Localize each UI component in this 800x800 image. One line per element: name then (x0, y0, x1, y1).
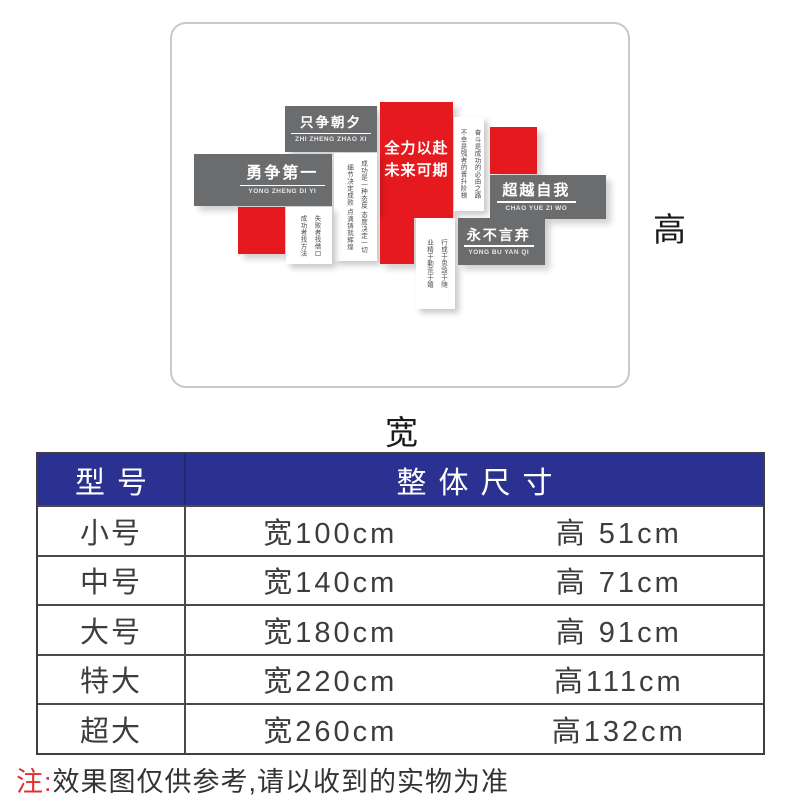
height-value: 高 51cm (475, 510, 764, 552)
width-value: 宽140cm (186, 559, 475, 601)
slogan-inner: 只争朝夕 ZHI ZHENG ZHAO XI (291, 106, 370, 152)
slogan-title: 勇争第一 (240, 165, 326, 183)
dimensions-cell: 宽100cm 高 51cm (186, 507, 763, 555)
slogan-pinyin: CHAO YUE ZI WO (497, 205, 576, 212)
slogan-title: 只争朝夕 (291, 115, 370, 131)
product-page: 只争朝夕 ZHI ZHENG ZHAO XI 全力以赴 未来可期 奋斗是成功的必… (0, 0, 800, 800)
slogan-inner: 永不言弃 YONG BU YAN QI (464, 218, 534, 265)
header-dimensions: 整体尺寸 (186, 454, 763, 505)
note-text: 效果图仅供参考,请以收到的实物为准 (53, 767, 510, 797)
dimensions-cell: 宽140cm 高 71cm (186, 557, 763, 605)
red-square-bottom-middle (380, 217, 414, 264)
size-table: 型号 整体尺寸 小号 宽100cm 高 51cm 中号 宽140cm 高 71c… (36, 452, 765, 755)
model-cell: 小号 (38, 507, 186, 555)
vertical-text-col: 成功者找方法 (297, 215, 307, 257)
vertical-text-strip-xingcheng: 行成于思毁于随 业精于勤荒于嬉 (416, 218, 455, 309)
slogan-line1: 全力以赴 (384, 138, 448, 161)
note-prefix: 注: (16, 767, 53, 797)
vertical-text-col: 失败者找借口 (311, 215, 321, 257)
underline-rule (240, 185, 326, 187)
slogan-block-chao-yue-zi-wo: 超越自我 CHAO YUE ZI WO (490, 175, 606, 219)
underline-rule (464, 245, 534, 247)
table-row: 特大 宽220cm 高111cm (38, 654, 763, 704)
slogan-title: 永不言弃 (464, 227, 534, 243)
width-value: 宽260cm (186, 708, 475, 750)
width-value: 宽100cm (186, 510, 475, 552)
table-row: 中号 宽140cm 高 71cm (38, 555, 763, 605)
height-dimension-label: 高 (653, 203, 686, 251)
vertical-text-col: 成功是一种态度 态度决定一切 (358, 160, 368, 253)
slogan-line2: 未来可期 (384, 160, 448, 183)
vertical-text-strip-shibai: 失败者找借口 成功者找方法 (286, 207, 332, 264)
height-value: 高132cm (475, 708, 764, 750)
vertical-text-col: 奋斗是成功的必由之路 (471, 129, 481, 199)
vertical-text-strip-fendou: 奋斗是成功的必由之路 不幸是强者的晋升阶梯 (454, 117, 484, 211)
model-cell: 超大 (38, 705, 186, 753)
vertical-text-strip-chenggong: 成功是一种态度 态度决定一切 细节决定成败 点滴铸就辉煌 (334, 153, 377, 261)
table-row: 小号 宽100cm 高 51cm (38, 505, 763, 555)
model-cell: 大号 (38, 606, 186, 654)
red-square-left (238, 207, 285, 254)
slogan-block-quan-li-yi-fu: 全力以赴 未来可期 (380, 102, 453, 218)
slogan-title: 超越自我 (497, 182, 576, 199)
header-model: 型号 (38, 454, 186, 505)
slogan-pinyin: ZHI ZHENG ZHAO XI (291, 136, 370, 143)
width-value: 宽180cm (186, 609, 475, 651)
slogan-block-yong-zheng-di-yi: 勇争第一 YONG ZHENG DI YI (194, 154, 332, 206)
red-square-top-right (490, 127, 537, 174)
dimensions-cell: 宽180cm 高 91cm (186, 606, 763, 654)
width-value: 宽220cm (186, 658, 475, 700)
height-value: 高 71cm (475, 559, 764, 601)
table-row: 超大 宽260cm 高132cm (38, 703, 763, 753)
slogan-pinyin: YONG ZHENG DI YI (240, 188, 326, 195)
underline-rule (497, 201, 576, 203)
table-row: 大号 宽180cm 高 91cm (38, 604, 763, 654)
disclaimer-note: 注:效果图仅供参考,请以收到的实物为准 (16, 760, 509, 799)
product-preview-frame: 只争朝夕 ZHI ZHENG ZHAO XI 全力以赴 未来可期 奋斗是成功的必… (170, 22, 630, 388)
slogan-block-zhi-zheng-zhao-xi: 只争朝夕 ZHI ZHENG ZHAO XI (285, 106, 377, 152)
slogan-pinyin: YONG BU YAN QI (464, 249, 534, 256)
vertical-text-col: 行成于思毁于随 (438, 239, 448, 288)
size-table-header: 型号 整体尺寸 (38, 454, 763, 505)
dimensions-cell: 宽260cm 高132cm (186, 705, 763, 753)
width-dimension-label: 宽 (385, 406, 418, 454)
model-cell: 中号 (38, 557, 186, 605)
model-cell: 特大 (38, 656, 186, 704)
vertical-text-col: 细节决定成败 点滴铸就辉煌 (344, 164, 354, 250)
slogan-inner: 超越自我 CHAO YUE ZI WO (497, 175, 576, 219)
height-value: 高111cm (475, 658, 764, 700)
vertical-text-col: 业精于勤荒于嬉 (424, 239, 434, 288)
slogan-inner: 勇争第一 YONG ZHENG DI YI (240, 154, 326, 206)
dimensions-cell: 宽220cm 高111cm (186, 656, 763, 704)
underline-rule (291, 133, 370, 135)
height-value: 高 91cm (475, 609, 764, 651)
vertical-text-col: 不幸是强者的晋升阶梯 (457, 129, 467, 199)
slogan-block-yong-bu-yan-qi: 永不言弃 YONG BU YAN QI (458, 218, 545, 265)
